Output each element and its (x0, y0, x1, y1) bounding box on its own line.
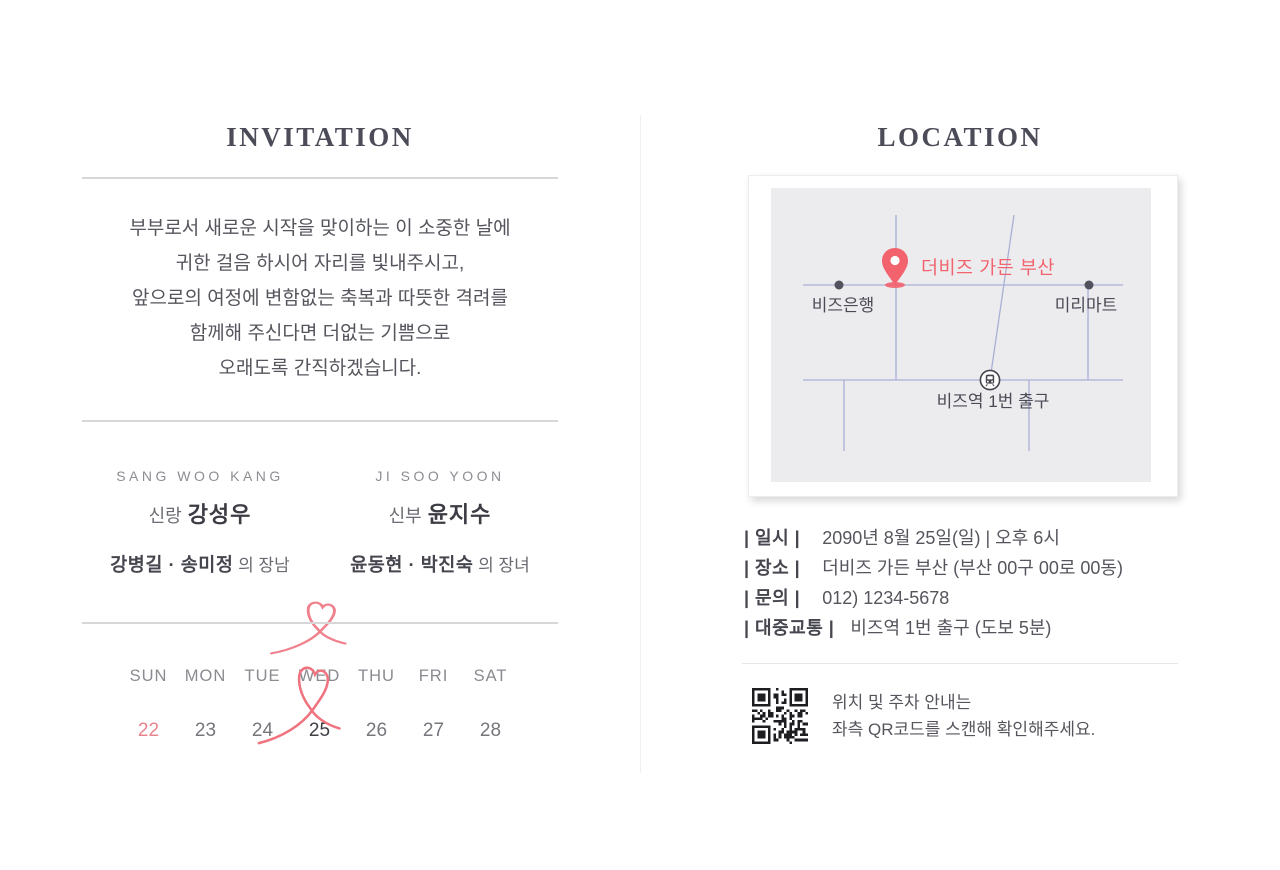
map-card: 더비즈 가든 부산 비즈은행 미리마트 비즈역 1번 출구 (748, 175, 1178, 497)
qr-code (752, 688, 808, 744)
calendar-day: 26 (348, 716, 405, 746)
groom-name-kr: 신랑강성우 (80, 497, 320, 529)
detail-row-datetime: | 일시 |2090년 8월 25일(일) | 오후 6시 (744, 523, 1194, 553)
invitation-title: INVITATION (80, 122, 560, 153)
calendar-days-row: 22 23 24 25 26 27 28 (120, 716, 520, 746)
map-bank-label: 비즈은행 (812, 296, 875, 315)
qr-note: 위치 및 주차 안내는 좌측 QR코드를 스캔해 확인해주세요. (832, 689, 1095, 743)
detail-row-contact: | 문의 |012) 1234-5678 (744, 583, 1194, 613)
calendar: SUN MON TUE WED THU FRI SAT 22 23 24 25 … (120, 660, 520, 746)
bank-dot-icon (835, 281, 844, 290)
map-roads (803, 215, 1123, 451)
bride-name: 윤지수 (428, 502, 492, 527)
divider (82, 622, 558, 624)
map: 더비즈 가든 부산 비즈은행 미리마트 비즈역 1번 출구 (771, 188, 1151, 482)
calendar-day: 28 (462, 716, 519, 746)
calendar-header: SUN (120, 660, 177, 692)
calendar-day: 22 (120, 716, 177, 746)
calendar-day: 24 (234, 716, 291, 746)
mart-dot-icon (1085, 281, 1094, 290)
groom-name: 강성우 (188, 502, 252, 527)
map-pin-icon (882, 248, 908, 288)
calendar-day: 23 (177, 716, 234, 746)
location-title: LOCATION (720, 122, 1200, 153)
event-details: | 일시 |2090년 8월 25일(일) | 오후 6시 | 장소 |더비즈 … (744, 523, 1194, 643)
detail-row-venue: | 장소 |더비즈 가든 부산 (부산 00구 00로 00동) (744, 553, 1194, 583)
groom-block: SANG WOO KANG 신랑강성우 강병길 · 송미정 의 장남 (80, 468, 320, 577)
subway-station-icon (980, 370, 999, 389)
calendar-header: SAT (462, 660, 519, 692)
divider (82, 177, 558, 179)
groom-role: 신랑 (149, 506, 182, 526)
bride-block: JI SOO YOON 신부윤지수 윤동현 · 박진숙 의 장녀 (320, 468, 560, 577)
groom-name-en: SANG WOO KANG (80, 468, 320, 484)
qr-block: 위치 및 주차 안내는 좌측 QR코드를 스캔해 확인해주세요. (752, 688, 1095, 744)
map-mart-label: 미리마트 (1055, 296, 1118, 315)
column-divider (640, 115, 641, 773)
divider (82, 420, 558, 422)
map-graphic: 더비즈 가든 부산 비즈은행 미리마트 비즈역 1번 출구 (771, 188, 1151, 482)
groom-parents: 강병길 · 송미정 의 장남 (80, 551, 320, 577)
bride-name-kr: 신부윤지수 (320, 497, 560, 529)
invitation-message: 부부로서 새로운 시작을 맞이하는 이 소중한 날에 귀한 걸음 하시어 자리를… (80, 211, 560, 386)
calendar-header: MON (177, 660, 234, 692)
map-station-label: 비즈역 1번 출구 (937, 392, 1050, 411)
map-venue-label: 더비즈 가든 부산 (921, 257, 1055, 278)
calendar-header: WED (291, 660, 348, 692)
calendar-header: FRI (405, 660, 462, 692)
calendar-day-selected: 25 (291, 716, 348, 746)
calendar-header-row: SUN MON TUE WED THU FRI SAT (120, 660, 520, 692)
couple-block: SANG WOO KANG 신랑강성우 강병길 · 송미정 의 장남 JI SO… (80, 468, 560, 577)
bride-name-en: JI SOO YOON (320, 468, 560, 484)
detail-row-transit: | 대중교통 |비즈역 1번 출구 (도보 5분) (744, 613, 1194, 643)
divider (742, 663, 1178, 664)
bride-parents: 윤동현 · 박진숙 의 장녀 (320, 551, 560, 577)
calendar-day: 27 (405, 716, 462, 746)
calendar-header: THU (348, 660, 405, 692)
bride-role: 신부 (389, 506, 422, 526)
heart-icon (266, 592, 374, 658)
wedding-invitation-page: INVITATION 부부로서 새로운 시작을 맞이하는 이 소중한 날에 귀한… (0, 0, 1280, 870)
calendar-header: TUE (234, 660, 291, 692)
